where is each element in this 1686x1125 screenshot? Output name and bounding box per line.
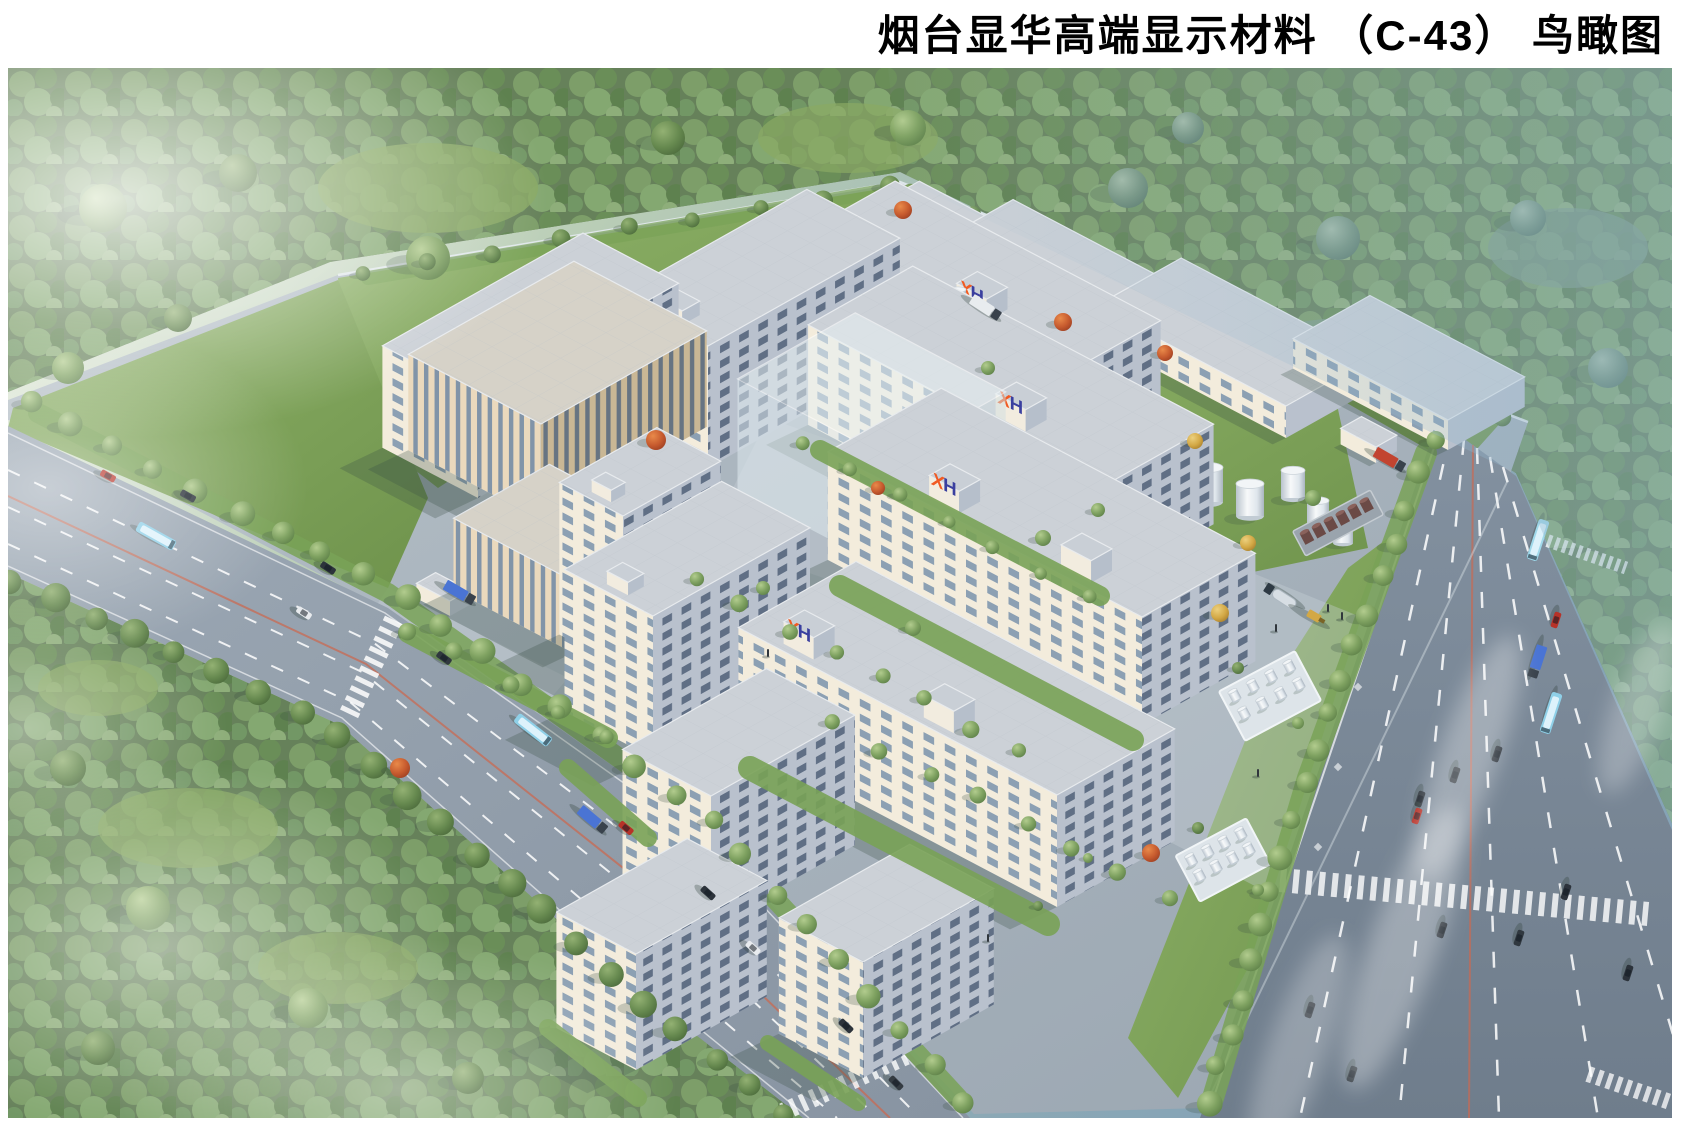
header: 烟台显华高端显示材料 （C-43） 鸟瞰图 — [0, 0, 1686, 68]
page-title: 烟台显华高端显示材料 （C-43） 鸟瞰图 — [878, 2, 1664, 63]
aerial-rendering: XHXHXHXH — [8, 68, 1672, 1118]
page: 烟台显华高端显示材料 （C-43） 鸟瞰图 — [0, 0, 1686, 1125]
birdseye-scene: XHXHXHXH — [8, 68, 1672, 1118]
